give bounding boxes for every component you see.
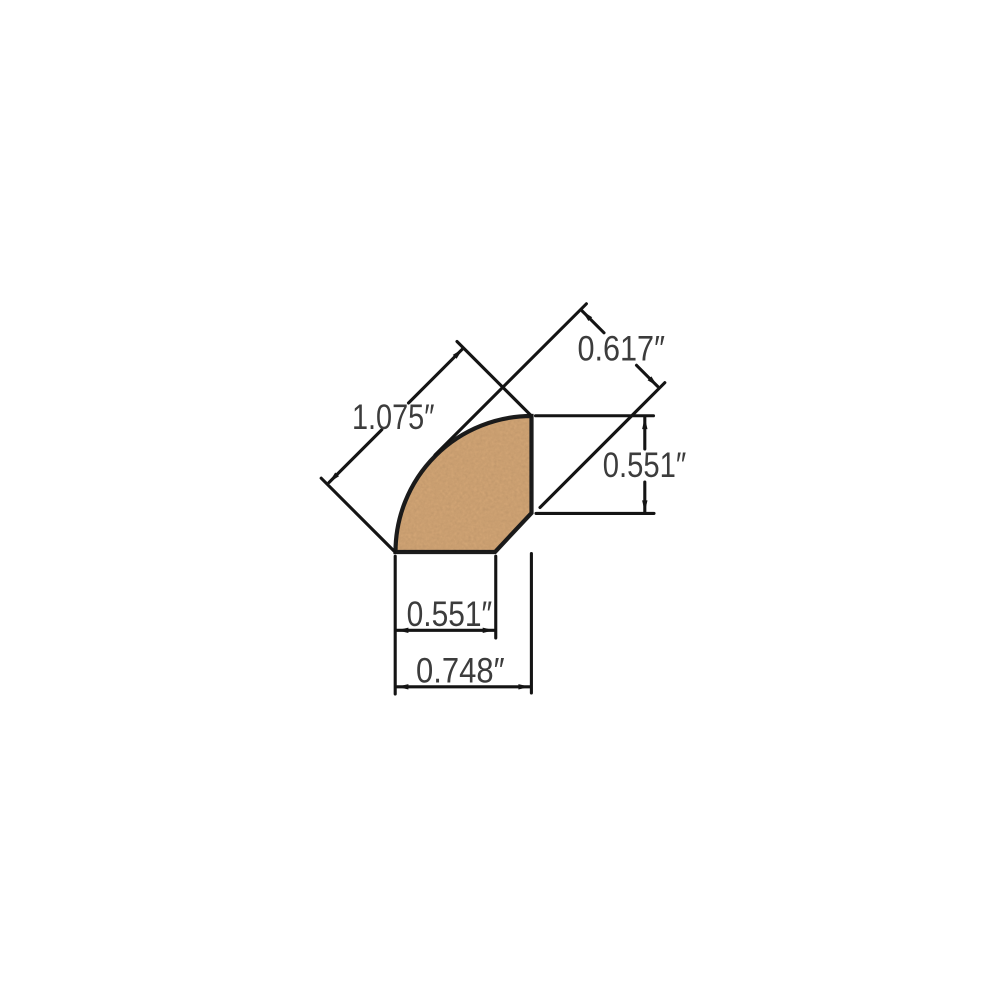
svg-text:0.617″: 0.617″	[577, 328, 665, 368]
svg-text:0.748″: 0.748″	[416, 650, 505, 690]
svg-text:0.551″: 0.551″	[407, 594, 493, 634]
svg-text:0.551″: 0.551″	[603, 445, 687, 485]
svg-text:1.075″: 1.075″	[352, 397, 435, 437]
